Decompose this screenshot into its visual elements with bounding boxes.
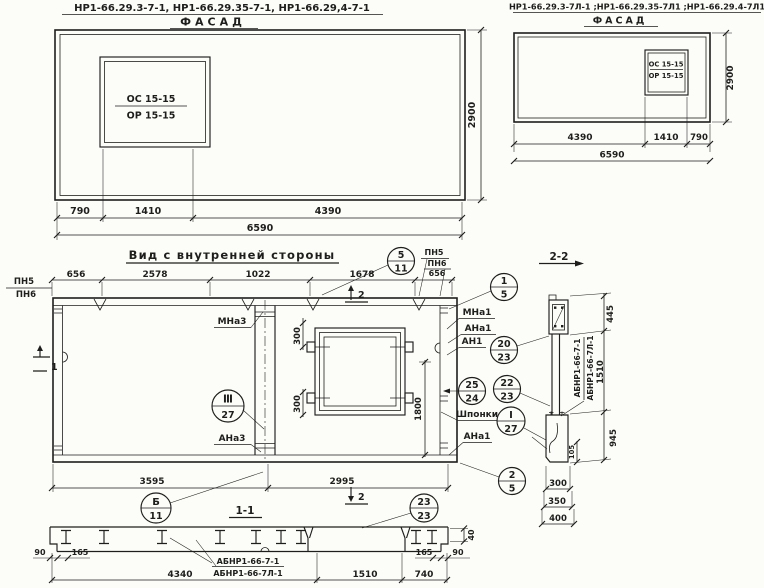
callout-top: Ⅲ xyxy=(223,394,233,406)
section-2-2-profile xyxy=(532,295,568,462)
callout-bottom: 11 xyxy=(149,511,162,522)
callout-top: 5 xyxy=(398,250,405,261)
callout-23-23: 23 23 xyxy=(362,494,438,528)
label-ana1-b: АНа1 xyxy=(464,432,491,442)
dim-790: 790 xyxy=(690,133,708,143)
dim-4390: 4390 xyxy=(567,133,592,143)
inner-part-labels: МНа3 АНа3 МНа1 АНа1 АН1 Шпонки АНа1 xyxy=(214,308,498,455)
dim-2995: 2995 xyxy=(329,477,354,487)
callout-top: 1 xyxy=(501,276,508,287)
facade-right: НР1-66.29.3-7Л-1 ;НР1-66.29.35-7Л1 ;НР1-… xyxy=(509,2,764,165)
callout-top: 25 xyxy=(465,380,478,391)
callout-bottom: 23 xyxy=(497,353,510,364)
section-mark-1: 1 xyxy=(33,345,58,373)
dim-2900: 2900 xyxy=(467,101,478,128)
dim-6590: 6590 xyxy=(247,223,274,234)
label-pn6-left: ПН6 xyxy=(16,290,36,300)
callout-top: I xyxy=(509,410,513,421)
window-mark-top: ОС 15-15 xyxy=(127,94,176,105)
label-pn5-left: ПН5 xyxy=(14,277,34,287)
callout-III-27: Ⅲ 27 xyxy=(212,390,264,429)
section-mark-2-bottom-label: 2 xyxy=(358,492,365,503)
label-shponki: Шпонки xyxy=(456,410,498,420)
section-1-1-channels xyxy=(61,531,437,544)
dim-1678: 1678 xyxy=(349,270,374,280)
inner-view-title: Вид с внутренней стороны xyxy=(129,248,336,262)
dim-400: 400 xyxy=(549,514,567,524)
callout-20-23: 20 23 xyxy=(491,336,550,364)
facade-right-title: НР1-66.29.3-7Л-1 ;НР1-66.29.35-7Л1 ;НР1-… xyxy=(509,2,764,12)
label-pn6-right: ПН6 xyxy=(428,259,447,268)
drawing-sheet: НР1-66.29.3-7-1, НР1-66.29.35-7-1, НР1-6… xyxy=(0,0,764,588)
label-mna1: МНа1 xyxy=(463,308,492,318)
inner-view: Вид с внутренней стороны 656 2578 1022 1… xyxy=(6,248,550,529)
callout-bottom: 5 xyxy=(501,290,508,301)
label-ana1: АНа1 xyxy=(465,324,492,334)
callout-1-5: 1 5 xyxy=(449,274,518,310)
callout-bottom: 27 xyxy=(221,410,234,421)
section-mark-1-label: 1 xyxy=(51,362,58,373)
dim-4390: 4390 xyxy=(315,206,342,217)
dim-656-2: 656 xyxy=(429,269,446,278)
callout-22-23: 22 23 xyxy=(494,376,551,407)
window-mark-bottom: ОР 15-15 xyxy=(649,72,684,80)
dim-1410: 1410 xyxy=(653,133,678,143)
dim-790: 790 xyxy=(70,206,90,217)
callout-bottom: 5 xyxy=(509,484,516,495)
facade-left-title: НР1-66.29.3-7-1, НР1-66.29.35-7-1, НР1-6… xyxy=(74,3,370,14)
facade-right-dimensions: 4390 1410 790 6590 2900 xyxy=(511,30,736,164)
section-2-2-dimensions: 445 945 105 300 350 400 xyxy=(539,293,619,527)
inner-bottom-dimensions: 3595 2995 xyxy=(49,464,451,492)
window-mark-bottom: ОР 15-15 xyxy=(127,111,176,122)
callout-top: 23 xyxy=(417,497,430,508)
dim-1022: 1022 xyxy=(245,270,270,280)
dim-4340: 4340 xyxy=(167,570,192,580)
callout-25-24: 25 24 xyxy=(443,378,486,405)
dim-90-right: 90 xyxy=(452,548,464,557)
facade-left-panel: ОС 15-15 ОР 15-15 xyxy=(55,30,465,200)
callout-top: Б xyxy=(152,497,160,508)
inner-left-labels: ПН5 ПН6 xyxy=(6,277,52,300)
dim-165-right: 165 xyxy=(416,548,433,557)
section-label-1-1: 1-1 xyxy=(236,505,255,517)
facade-right-panel: ОС 15-15 ОР 15-15 xyxy=(514,33,710,122)
dim-445: 445 xyxy=(606,305,616,323)
dim-2900: 2900 xyxy=(726,65,736,90)
label-ana3: АНа3 xyxy=(219,434,246,444)
dim-1800: 1800 xyxy=(414,397,424,421)
callout-top: 20 xyxy=(497,339,511,350)
facade-left-view-label: ФАСАД xyxy=(180,16,246,29)
dim-656-1: 656 xyxy=(67,270,86,280)
callout-bottom: 27 xyxy=(504,424,517,435)
label-abnr1-l: АБНР1-66-7Л-1 xyxy=(213,569,283,578)
callout-I-27: I 27 xyxy=(497,407,546,440)
facade-left-dimensions: 790 1410 4390 6590 2900 xyxy=(54,27,487,240)
rot-label-abnr1-l: АБНР1-66-7Л-1 xyxy=(586,336,595,401)
section-2-2: 2-2 АБНР1-66-7-1 АБНР1-66-7Л-1 1510 xyxy=(532,251,619,527)
callout-top: 2 xyxy=(509,470,516,481)
label-pn5-right: ПН5 xyxy=(425,248,444,257)
section-1-1-outline xyxy=(50,527,448,552)
dim-945: 945 xyxy=(609,429,619,447)
dim-90-left: 90 xyxy=(34,548,46,557)
dim-1410: 1410 xyxy=(135,206,162,217)
rot-dim-1510: 1510 xyxy=(596,360,606,384)
label-abnr1: АБНР1-66-7-1 xyxy=(217,557,280,566)
facade-left: НР1-66.29.3-7-1, НР1-66.29.35-7-1, НР1-6… xyxy=(54,3,487,240)
inner-mullion xyxy=(255,300,275,459)
dim-105: 105 xyxy=(568,445,576,459)
callout-bottom: 11 xyxy=(394,264,407,275)
dim-350: 350 xyxy=(548,497,566,507)
dim-740: 740 xyxy=(415,570,434,580)
dim-300-bottom: 300 xyxy=(293,395,303,413)
inner-window xyxy=(307,328,413,415)
panel-drawing: НР1-66.29.3-7-1, НР1-66.29.35-7-1, НР1-6… xyxy=(0,0,764,588)
label-an1: АН1 xyxy=(462,337,483,347)
section-2-2-rot-labels: АБНР1-66-7-1 АБНР1-66-7Л-1 1510 xyxy=(561,336,606,416)
section-mark-2-top-label: 2 xyxy=(358,290,365,301)
callout-top: 22 xyxy=(500,378,513,389)
callout-bottom: 23 xyxy=(417,511,430,522)
dim-300-top: 300 xyxy=(293,327,303,345)
callout-bottom: 23 xyxy=(500,392,513,403)
dim-300: 300 xyxy=(549,479,567,489)
dim-6590: 6590 xyxy=(599,151,624,161)
section-mark-2-bottom: 2 xyxy=(345,487,368,504)
section-2-2-arrow xyxy=(575,261,584,267)
dim-1510: 1510 xyxy=(352,570,377,580)
label-mna3: МНа3 xyxy=(218,317,247,327)
dim-165-left: 165 xyxy=(72,548,89,557)
dim-2578: 2578 xyxy=(142,270,167,280)
callout-2-5: 2 5 xyxy=(460,463,526,495)
window-mark-top: ОС 15-15 xyxy=(649,61,684,69)
dim-3595: 3595 xyxy=(139,477,164,487)
facade-right-view-label: ФАСАД xyxy=(593,16,648,27)
section-2-2-title: 2-2 xyxy=(550,251,569,263)
section-1-1: АБНР1-66-7-1 АБНР1-66-7Л-1 90 165 165 90… xyxy=(33,526,476,584)
dim-40: 40 xyxy=(467,529,476,541)
inner-window-dimensions: 300 300 1800 xyxy=(293,318,431,458)
rot-label-abnr1: АБНР1-66-7-1 xyxy=(573,339,582,398)
section-mark-2-top: 2 xyxy=(345,285,368,302)
callout-bottom: 24 xyxy=(465,394,479,405)
